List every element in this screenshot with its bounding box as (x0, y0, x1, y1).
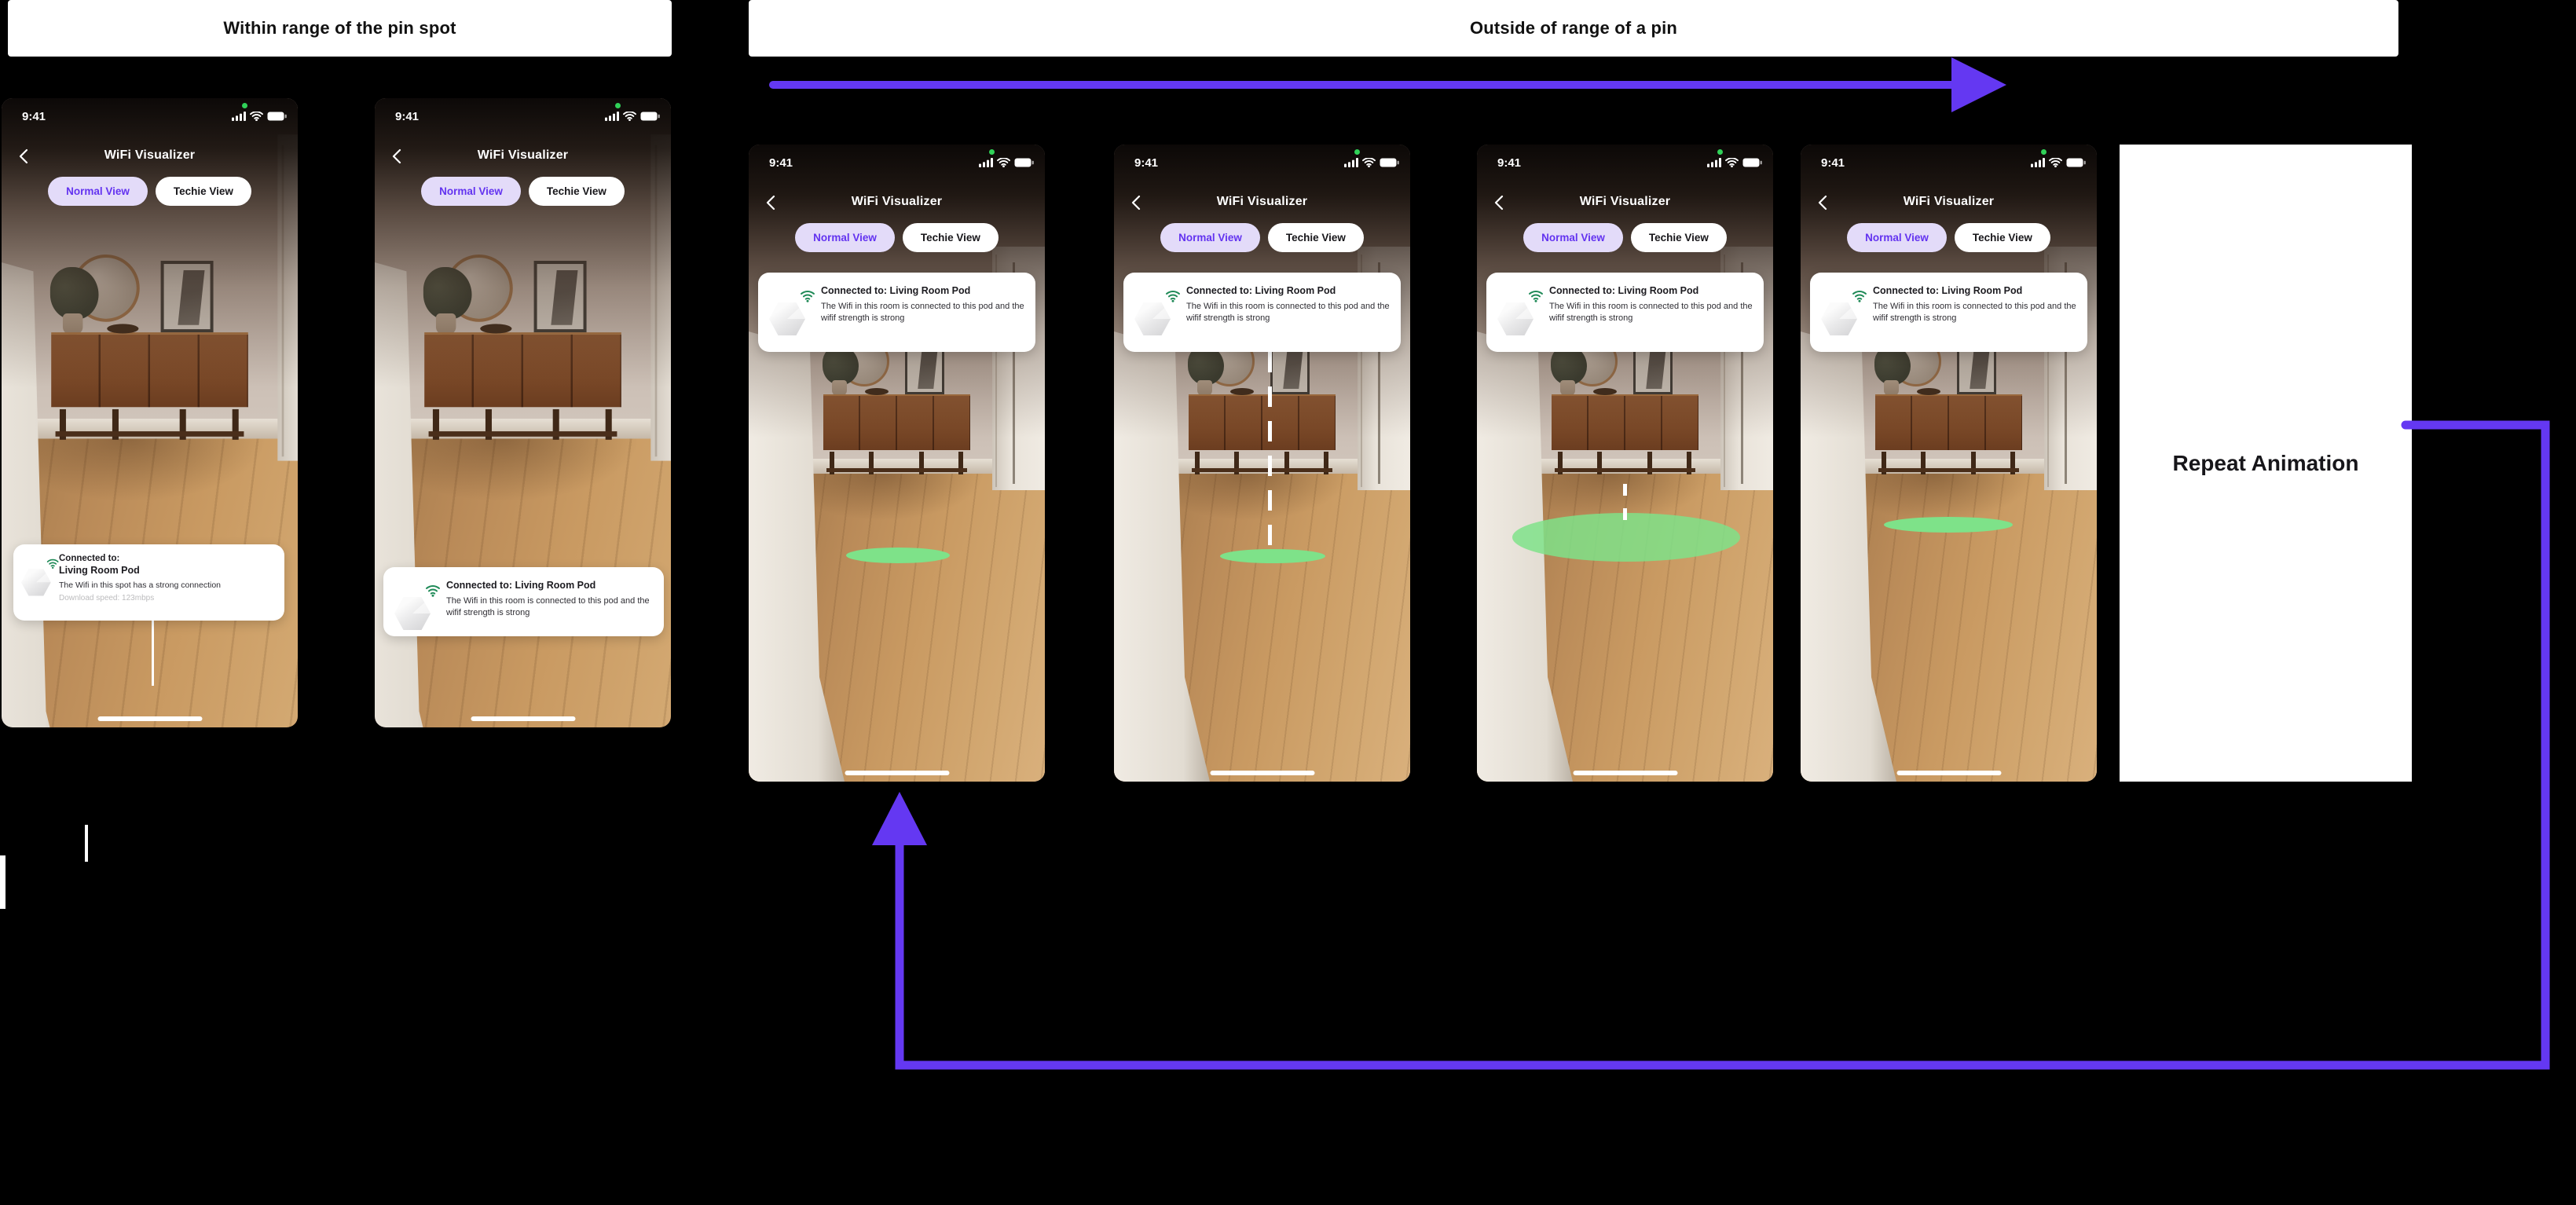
status-time: 9:41 (22, 110, 46, 123)
pod-illustration (394, 584, 442, 632)
battery-icon (1742, 158, 1762, 167)
tab-normal-view[interactable]: Normal View (1160, 223, 1260, 252)
view-toggle: Normal View Techie View (1477, 223, 1773, 252)
wifi-arcs-icon (799, 290, 818, 302)
section-label-within-range: Within range of the pin spot (8, 0, 672, 57)
home-indicator-bar[interactable] (1896, 771, 2001, 775)
flow-arrow-up-head (872, 792, 927, 845)
wifi-icon (1725, 158, 1739, 167)
sideboard-stretcher (1192, 468, 1332, 472)
pin-range-spot (846, 548, 950, 563)
status-bar: 9:41 (2, 109, 298, 126)
sideboard (51, 332, 248, 407)
cellular-signal-icon (232, 112, 246, 121)
repeat-animation-box: Repeat Animation (2120, 145, 2412, 782)
home-indicator-bar[interactable] (1210, 771, 1314, 775)
nav-bar: WiFi Visualizer (2, 147, 298, 167)
battery-icon (1380, 158, 1399, 167)
card-title: Connected to: Living Room Pod (821, 285, 1027, 296)
card-title: Connected to: Living Room Pod (1873, 285, 2079, 296)
sideboard (1875, 394, 2022, 450)
bowl (865, 388, 889, 395)
connection-info-card: Connected to: Living Room Pod The Wifi i… (1486, 273, 1764, 352)
tab-normal-view[interactable]: Normal View (795, 223, 895, 252)
card-title-line1: Connected to: (59, 554, 275, 563)
picture-frame (161, 261, 214, 332)
status-icons (232, 112, 287, 121)
card-title: Connected to: Living Room Pod (1186, 285, 1392, 296)
hexagon-pod-icon (769, 302, 805, 335)
view-toggle: Normal View Techie View (749, 223, 1045, 252)
battery-icon (1014, 158, 1034, 167)
card-body: The Wifi in this room is connected to th… (1186, 301, 1392, 325)
section-label-outside-range: Outside of range of a pin (749, 0, 2398, 57)
status-time: 9:41 (1821, 156, 1845, 170)
status-bar: 9:41 (749, 156, 1045, 173)
status-bar: 9:41 (1477, 156, 1773, 173)
status-green-dot (989, 149, 995, 155)
hexagon-pod-icon (21, 569, 51, 595)
pod-illustration (21, 559, 60, 597)
page-title: WiFi Visualizer (749, 195, 1045, 209)
card-body: The Wifi in this spot has a strong conne… (59, 581, 275, 590)
status-green-dot (2041, 149, 2047, 155)
tab-techie-view[interactable]: Techie View (529, 177, 625, 206)
plant (50, 267, 99, 320)
status-icons (1707, 158, 1762, 167)
vase (1560, 380, 1575, 396)
status-icons (2031, 158, 2086, 167)
page-title: WiFi Visualizer (2, 148, 298, 163)
pod-illustration (1821, 290, 1868, 337)
nav-bar: WiFi Visualizer (375, 147, 671, 167)
status-icons (605, 112, 660, 121)
cellular-signal-icon (979, 158, 993, 167)
wifi-icon (2049, 158, 2062, 167)
bowl (107, 324, 138, 333)
design-canvas: { "banners": { "within_range": "Within r… (0, 0, 2576, 1205)
pin-range-spot (1884, 517, 2013, 533)
tab-techie-view[interactable]: Techie View (1631, 223, 1727, 252)
phone-mockup-5: 9:41 WiFi Visualizer (1477, 145, 1773, 782)
connection-info-card: Connected to: Living Room Pod The Wifi i… (758, 273, 1035, 352)
sideboard (1189, 394, 1336, 450)
tab-normal-view[interactable]: Normal View (1523, 223, 1623, 252)
view-toggle: Normal View Techie View (2, 177, 298, 206)
status-icons (1344, 158, 1399, 167)
connection-info-card: Connected to: Living Room Pod The Wifi i… (1123, 273, 1401, 352)
page-title: WiFi Visualizer (1114, 195, 1410, 209)
tab-techie-view[interactable]: Techie View (1955, 223, 2050, 252)
card-download-speed: Download speed: 123mbps (59, 594, 275, 602)
hexagon-pod-icon (394, 597, 431, 630)
pin-range-spot (1220, 549, 1325, 563)
hexagon-pod-icon (1821, 302, 1857, 335)
bowl (1593, 388, 1617, 395)
cellular-signal-icon (605, 112, 619, 121)
nav-bar: WiFi Visualizer (1477, 193, 1773, 214)
status-green-dot (1717, 149, 1723, 155)
status-bar: 9:41 (1114, 156, 1410, 173)
battery-icon (267, 112, 287, 121)
connection-info-card: Connected to: Living Room Pod The Wifi i… (383, 567, 664, 636)
phone-mockup-1: 9:41 WiFi Visualizer (2, 98, 298, 727)
sideboard-stretcher (1555, 468, 1695, 472)
battery-icon (2066, 158, 2086, 167)
card-title-line2: Living Room Pod (59, 565, 275, 576)
nav-bar: WiFi Visualizer (1114, 193, 1410, 214)
tab-techie-view[interactable]: Techie View (903, 223, 999, 252)
wifi-icon (250, 112, 263, 121)
wifi-arcs-icon (1851, 290, 1870, 302)
pin-stem-line (152, 621, 154, 686)
bowl (1917, 388, 1940, 395)
status-green-dot (242, 103, 247, 108)
card-body: The Wifi in this room is connected to th… (1549, 301, 1755, 325)
tab-normal-view[interactable]: Normal View (1847, 223, 1947, 252)
pod-illustration (1134, 290, 1182, 337)
view-toggle: Normal View Techie View (1801, 223, 2097, 252)
connection-info-card: Connected to: Living Room Pod The Wifi i… (13, 544, 284, 621)
vase (436, 313, 456, 335)
home-indicator-bar[interactable] (1573, 771, 1677, 775)
pod-illustration (1497, 290, 1545, 337)
card-title: Connected to: Living Room Pod (446, 580, 652, 591)
phone-mockup-2: 9:41 WiFi Visualizer (375, 98, 671, 727)
status-bar: 9:41 (375, 109, 671, 126)
status-time: 9:41 (1134, 156, 1158, 170)
nav-bar: WiFi Visualizer (749, 193, 1045, 214)
home-indicator-bar[interactable] (845, 771, 949, 775)
sideboard (424, 332, 621, 407)
wifi-icon (997, 158, 1010, 167)
wifi-icon (623, 112, 636, 121)
pin-dashed-line (1623, 484, 1627, 522)
vase (63, 313, 82, 335)
card-body: The Wifi in this room is connected to th… (446, 595, 652, 620)
sideboard-stretcher (1878, 468, 2019, 472)
cellular-signal-icon (1707, 158, 1721, 167)
status-time: 9:41 (395, 110, 419, 123)
page-title: WiFi Visualizer (375, 148, 671, 163)
battery-icon (640, 112, 660, 121)
tab-techie-view[interactable]: Techie View (1268, 223, 1364, 252)
vase (1884, 380, 1899, 396)
status-bar: 9:41 (1801, 156, 2097, 173)
hexagon-pod-icon (1134, 302, 1171, 335)
wifi-icon (1362, 158, 1376, 167)
vase (832, 380, 847, 396)
view-toggle: Normal View Techie View (375, 177, 671, 206)
status-green-dot (615, 103, 621, 108)
cellular-signal-icon (2031, 158, 2045, 167)
status-green-dot (1354, 149, 1360, 155)
home-indicator-bar[interactable] (97, 716, 202, 721)
phone-mockup-4: 9:41 WiFi Visualizer (1114, 145, 1410, 782)
view-toggle: Normal View Techie View (1114, 223, 1410, 252)
sideboard-stretcher (826, 468, 967, 472)
tab-normal-view[interactable]: Normal View (48, 177, 148, 206)
card-body: The Wifi in this room is connected to th… (1873, 301, 2079, 325)
phone-mockup-6: 9:41 WiFi Visualizer (1801, 145, 2097, 782)
status-time: 9:41 (1497, 156, 1521, 170)
picture-frame (534, 261, 587, 332)
cellular-signal-icon (1344, 158, 1358, 167)
pin-dashed-line (1268, 352, 1272, 546)
tab-techie-view[interactable]: Techie View (156, 177, 251, 206)
bowl (480, 324, 511, 333)
nav-bar: WiFi Visualizer (1801, 193, 2097, 214)
connection-info-card: Connected to: Living Room Pod The Wifi i… (1810, 273, 2087, 352)
phone-mockup-3: 9:41 WiFi Visualizer (749, 145, 1045, 782)
wifi-arcs-icon (1164, 290, 1183, 302)
sideboard-stretcher (56, 431, 244, 437)
page-title: WiFi Visualizer (1477, 195, 1773, 209)
wifi-arcs-icon (1527, 290, 1546, 302)
pod-illustration (769, 290, 816, 337)
plant (423, 267, 472, 320)
sideboard-stretcher (429, 431, 617, 437)
page-title: WiFi Visualizer (1801, 195, 2097, 209)
canvas-cursor-artifact (85, 825, 88, 862)
bowl (1230, 388, 1254, 395)
canvas-edge-artifact (0, 855, 5, 909)
card-title: Connected to: Living Room Pod (1549, 285, 1755, 296)
vase (1197, 380, 1212, 396)
home-indicator-bar[interactable] (471, 716, 575, 721)
hexagon-pod-icon (1497, 302, 1534, 335)
sideboard (823, 394, 970, 450)
status-icons (979, 158, 1034, 167)
wifi-arcs-icon (424, 584, 443, 597)
sideboard (1552, 394, 1698, 450)
card-body: The Wifi in this room is connected to th… (821, 301, 1027, 325)
status-time: 9:41 (769, 156, 793, 170)
tab-normal-view[interactable]: Normal View (421, 177, 521, 206)
flow-arrow-top-head (1951, 57, 2006, 112)
